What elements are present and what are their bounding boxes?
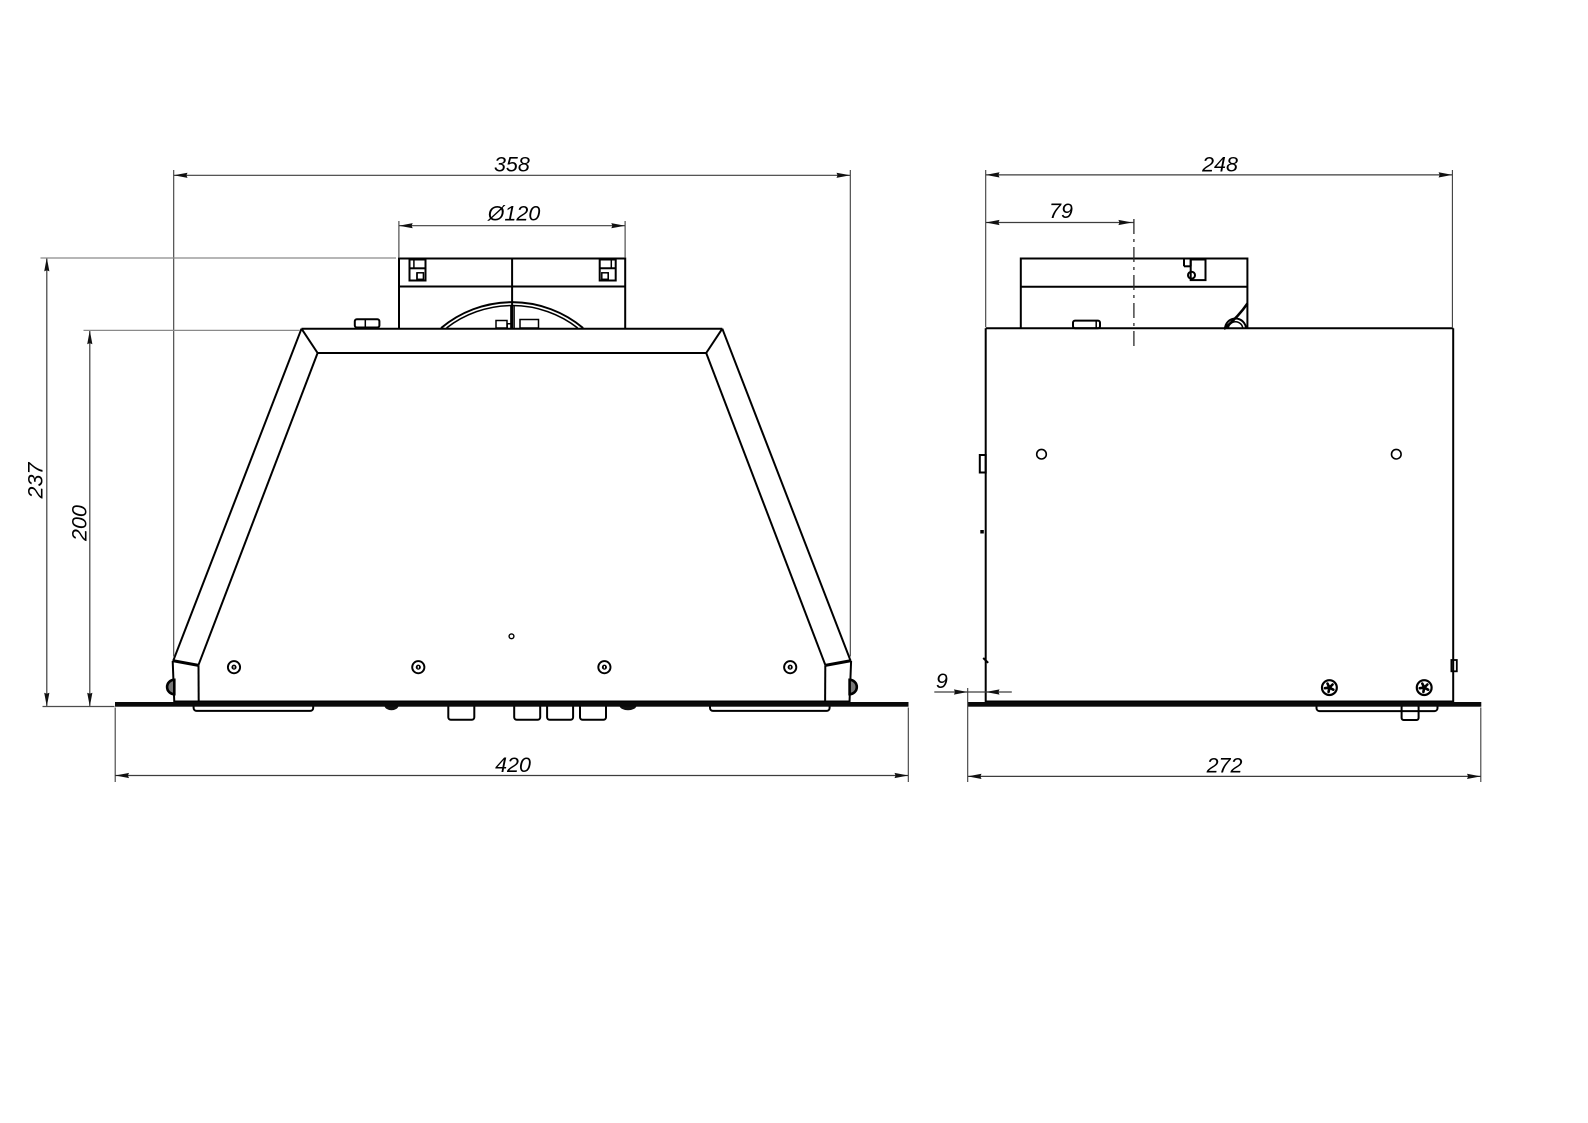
svg-text:9: 9 <box>936 669 948 693</box>
svg-text:248: 248 <box>1201 152 1238 176</box>
svg-text:200: 200 <box>68 505 92 542</box>
svg-text:358: 358 <box>494 153 530 177</box>
svg-text:420: 420 <box>495 753 531 777</box>
svg-text:237: 237 <box>23 462 47 500</box>
svg-text:Ø120: Ø120 <box>487 202 541 226</box>
svg-text:79: 79 <box>1049 199 1073 223</box>
svg-text:272: 272 <box>1206 754 1243 778</box>
